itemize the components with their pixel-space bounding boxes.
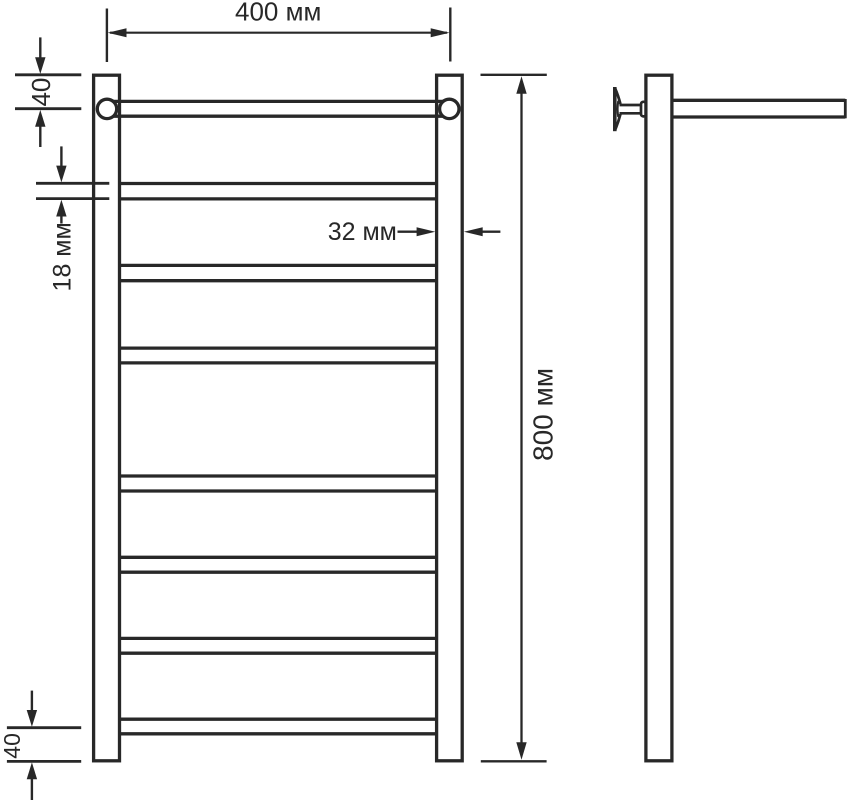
- svg-text:800 мм: 800 мм: [528, 368, 559, 461]
- svg-text:32 мм: 32 мм: [328, 218, 397, 246]
- svg-text:18 мм: 18 мм: [49, 222, 77, 291]
- svg-text:40: 40: [26, 78, 56, 107]
- svg-text:40: 40: [0, 733, 25, 759]
- svg-text:400 мм: 400 мм: [235, 0, 321, 26]
